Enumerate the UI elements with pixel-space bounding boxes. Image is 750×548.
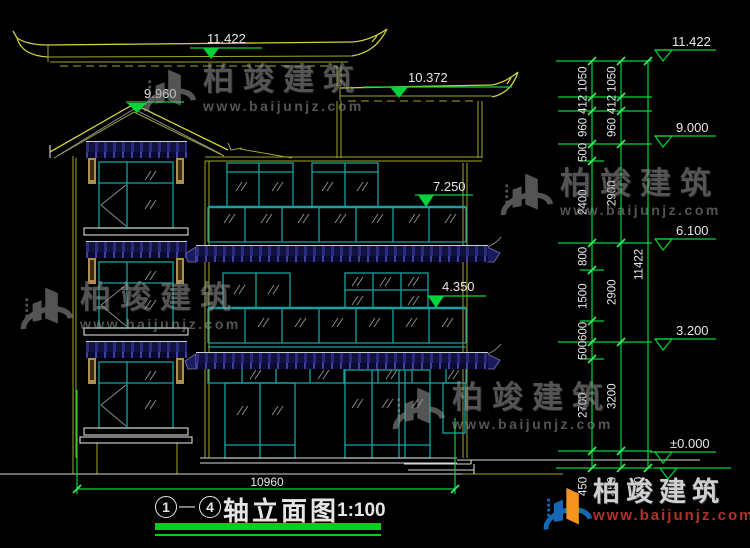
watermark: 柏竣建筑 www.baijunjz.com	[500, 168, 721, 226]
balcony-cornice-band-2f	[196, 352, 488, 369]
watermark-logo-icon	[143, 64, 197, 122]
watermark-logo-icon	[20, 282, 74, 340]
bay-cornice-2	[86, 241, 187, 258]
dim-inner-800: 800	[576, 234, 591, 278]
bay-cornice-1	[86, 141, 187, 158]
drawing-scale: 1:100	[337, 500, 386, 522]
brand-logo: 柏竣建筑 www.baijunjz.com	[543, 478, 750, 546]
elevation-ground: ±0.000	[670, 436, 710, 451]
watermark-url: www.baijunjz.com	[560, 202, 721, 218]
watermark-brand: 柏竣建筑	[203, 64, 364, 97]
balcony-cornice-band-3f	[196, 245, 488, 262]
watermark-logo-icon	[392, 382, 446, 440]
bay-cornice-3	[86, 341, 187, 358]
axis-bubble-end: 4	[199, 496, 221, 518]
watermark-brand: 柏竣建筑	[80, 282, 241, 315]
watermark-url: www.baijunjz.com	[452, 416, 613, 432]
dim-inner-500b: 500	[576, 328, 591, 372]
title-underline-thick	[155, 523, 381, 530]
marker-third-balcony: 7.250	[433, 179, 466, 194]
cad-elevation-screenshot: 11.422 9.960 10.372 7.250 4.350 11.422 9…	[0, 0, 750, 548]
brand-logo-icon	[543, 478, 593, 546]
watermark-url: www.baijunjz.com	[203, 98, 364, 114]
title-underline-thin	[155, 534, 381, 536]
elevation-markers-right	[650, 50, 731, 479]
watermark: 柏竣建筑 www.baijunjz.com	[392, 382, 613, 440]
overall-width-label: 10960	[232, 475, 302, 489]
watermark: 柏竣建筑 www.baijunjz.com	[143, 64, 364, 122]
second-floor-windows	[208, 273, 466, 347]
marker-main-ridge: 11.422	[207, 31, 246, 46]
brand-logo-url: www.baijunjz.com	[593, 507, 750, 524]
elevation-roof: 11.422	[672, 34, 711, 49]
marker-secondary-roof: 10.372	[408, 70, 448, 85]
watermark-brand: 柏竣建筑	[560, 168, 721, 201]
brand-logo-text: 柏竣建筑	[593, 478, 750, 506]
watermark-brand: 柏竣建筑	[452, 382, 613, 415]
dim-total-11422: 11422	[632, 242, 647, 286]
axis-bubble-start: 1	[155, 496, 177, 518]
watermark-logo-icon	[500, 168, 554, 226]
marker-second-balcony: 4.350	[442, 279, 475, 294]
watermark: 柏竣建筑 www.baijunjz.com	[20, 282, 241, 340]
elevation-third-floor: 9.000	[676, 120, 709, 135]
elevation-first-floor: 3.200	[676, 323, 709, 338]
dim-mid-2900b: 2900	[605, 270, 620, 314]
dim-mid-960: 960	[605, 105, 620, 149]
axis-separator: —	[179, 498, 195, 516]
watermark-url: www.baijunjz.com	[80, 316, 241, 332]
